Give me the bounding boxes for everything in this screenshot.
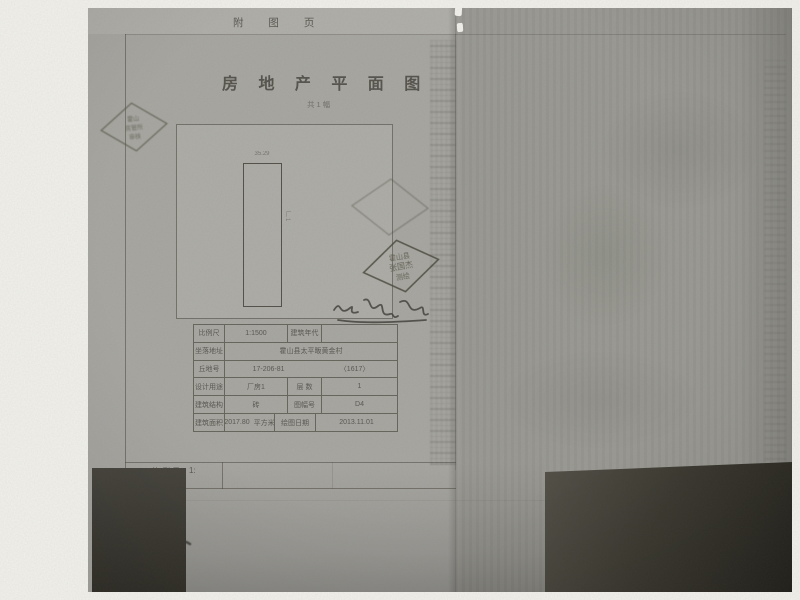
table-cell-value: 17-206-81 〈1617〉: [224, 361, 397, 378]
table-cell-value: 砖: [224, 396, 287, 413]
document-title: 房 地 产 平 面 图: [222, 70, 428, 94]
building-dimension: 35.29: [240, 151, 284, 157]
handwritten-signature: [328, 288, 433, 330]
toner-smudge: [600, 90, 760, 210]
building-label: 厂1: [283, 211, 292, 222]
table-cell-value: D4: [321, 396, 397, 413]
table-cell-label: 设计用途: [194, 378, 224, 395]
table-cell-label: 比例尺: [194, 325, 224, 342]
diamond-stamp-ghost-icon: [349, 175, 431, 240]
paper-notch: [455, 3, 463, 16]
table-cell-label: 图幅号: [287, 396, 321, 413]
table-cell-label: 建筑年代: [287, 325, 321, 342]
floor-area-unit: 平方米: [254, 418, 274, 428]
table-row: 建筑结构 砖 图幅号 D4: [194, 395, 397, 413]
bottom-middle-sheet-shade: [186, 462, 545, 592]
bleed-through-text-column-right: [764, 60, 786, 460]
table-row: 设计用途 厂房1 层 数 1: [194, 377, 397, 395]
table-cell-label: 丘地号: [194, 361, 224, 378]
table-cell-value: 1:1500: [224, 325, 287, 342]
diamond-stamp-left-icon: 霍山 房管所 审核: [96, 97, 171, 156]
table-cell-label: 层 数: [287, 378, 321, 395]
photo-of-document: 附 图 页 房 地 产 平 面 图 共1幅 35.29 厂1 比例尺 1:150…: [0, 0, 800, 600]
table-cell-value: 2017.80 平方米: [224, 414, 274, 431]
frame-right-line: [455, 34, 456, 470]
table-row: 丘地号 17-206-81 〈1617〉: [194, 360, 397, 378]
table-cell-label: 绘图日期: [274, 414, 315, 431]
table-cell-label: 建筑结构: [194, 396, 224, 413]
table-cell-value: 2013.11.01: [315, 414, 397, 431]
parcel-number-suffix: 〈1617〉: [340, 364, 370, 374]
stamp-left-line3: 审核: [129, 132, 142, 141]
table-row: 建筑面积 2017.80 平方米 绘图日期 2013.11.01: [194, 413, 397, 431]
floor-area-value: 2017.80: [224, 419, 249, 426]
building-outline: [243, 163, 282, 307]
info-table: 比例尺 1:1500 建筑年代 坐落地址 霍山县太平畈黄金村 丘地号 17-20…: [193, 324, 398, 432]
stamp-left-line2: 房管所: [125, 123, 144, 133]
stamp-right-line3: 测绘: [395, 271, 410, 282]
stamp-left-line1: 霍山: [127, 114, 140, 123]
table-cell-value: 1: [321, 378, 397, 395]
paper-notch: [457, 23, 464, 32]
sheet-count-subtitle: 共1幅: [307, 99, 332, 110]
table-cell-value: 厂房1: [224, 378, 287, 395]
table-cell-label: 建筑面积: [194, 414, 224, 431]
parcel-number: 17-206-81: [253, 366, 285, 373]
table-cell-value: 霍山县太平畈黄金村: [224, 343, 397, 360]
table-cell-label: 坐落地址: [194, 343, 224, 360]
toner-smudge: [500, 350, 700, 450]
page-header-label: 附 图 页: [233, 15, 325, 30]
table-row: 坐落地址 霍山县太平畈黄金村: [194, 342, 397, 360]
bottom-left-shadow: [92, 468, 186, 592]
bottom-right-shadow: [545, 462, 792, 592]
